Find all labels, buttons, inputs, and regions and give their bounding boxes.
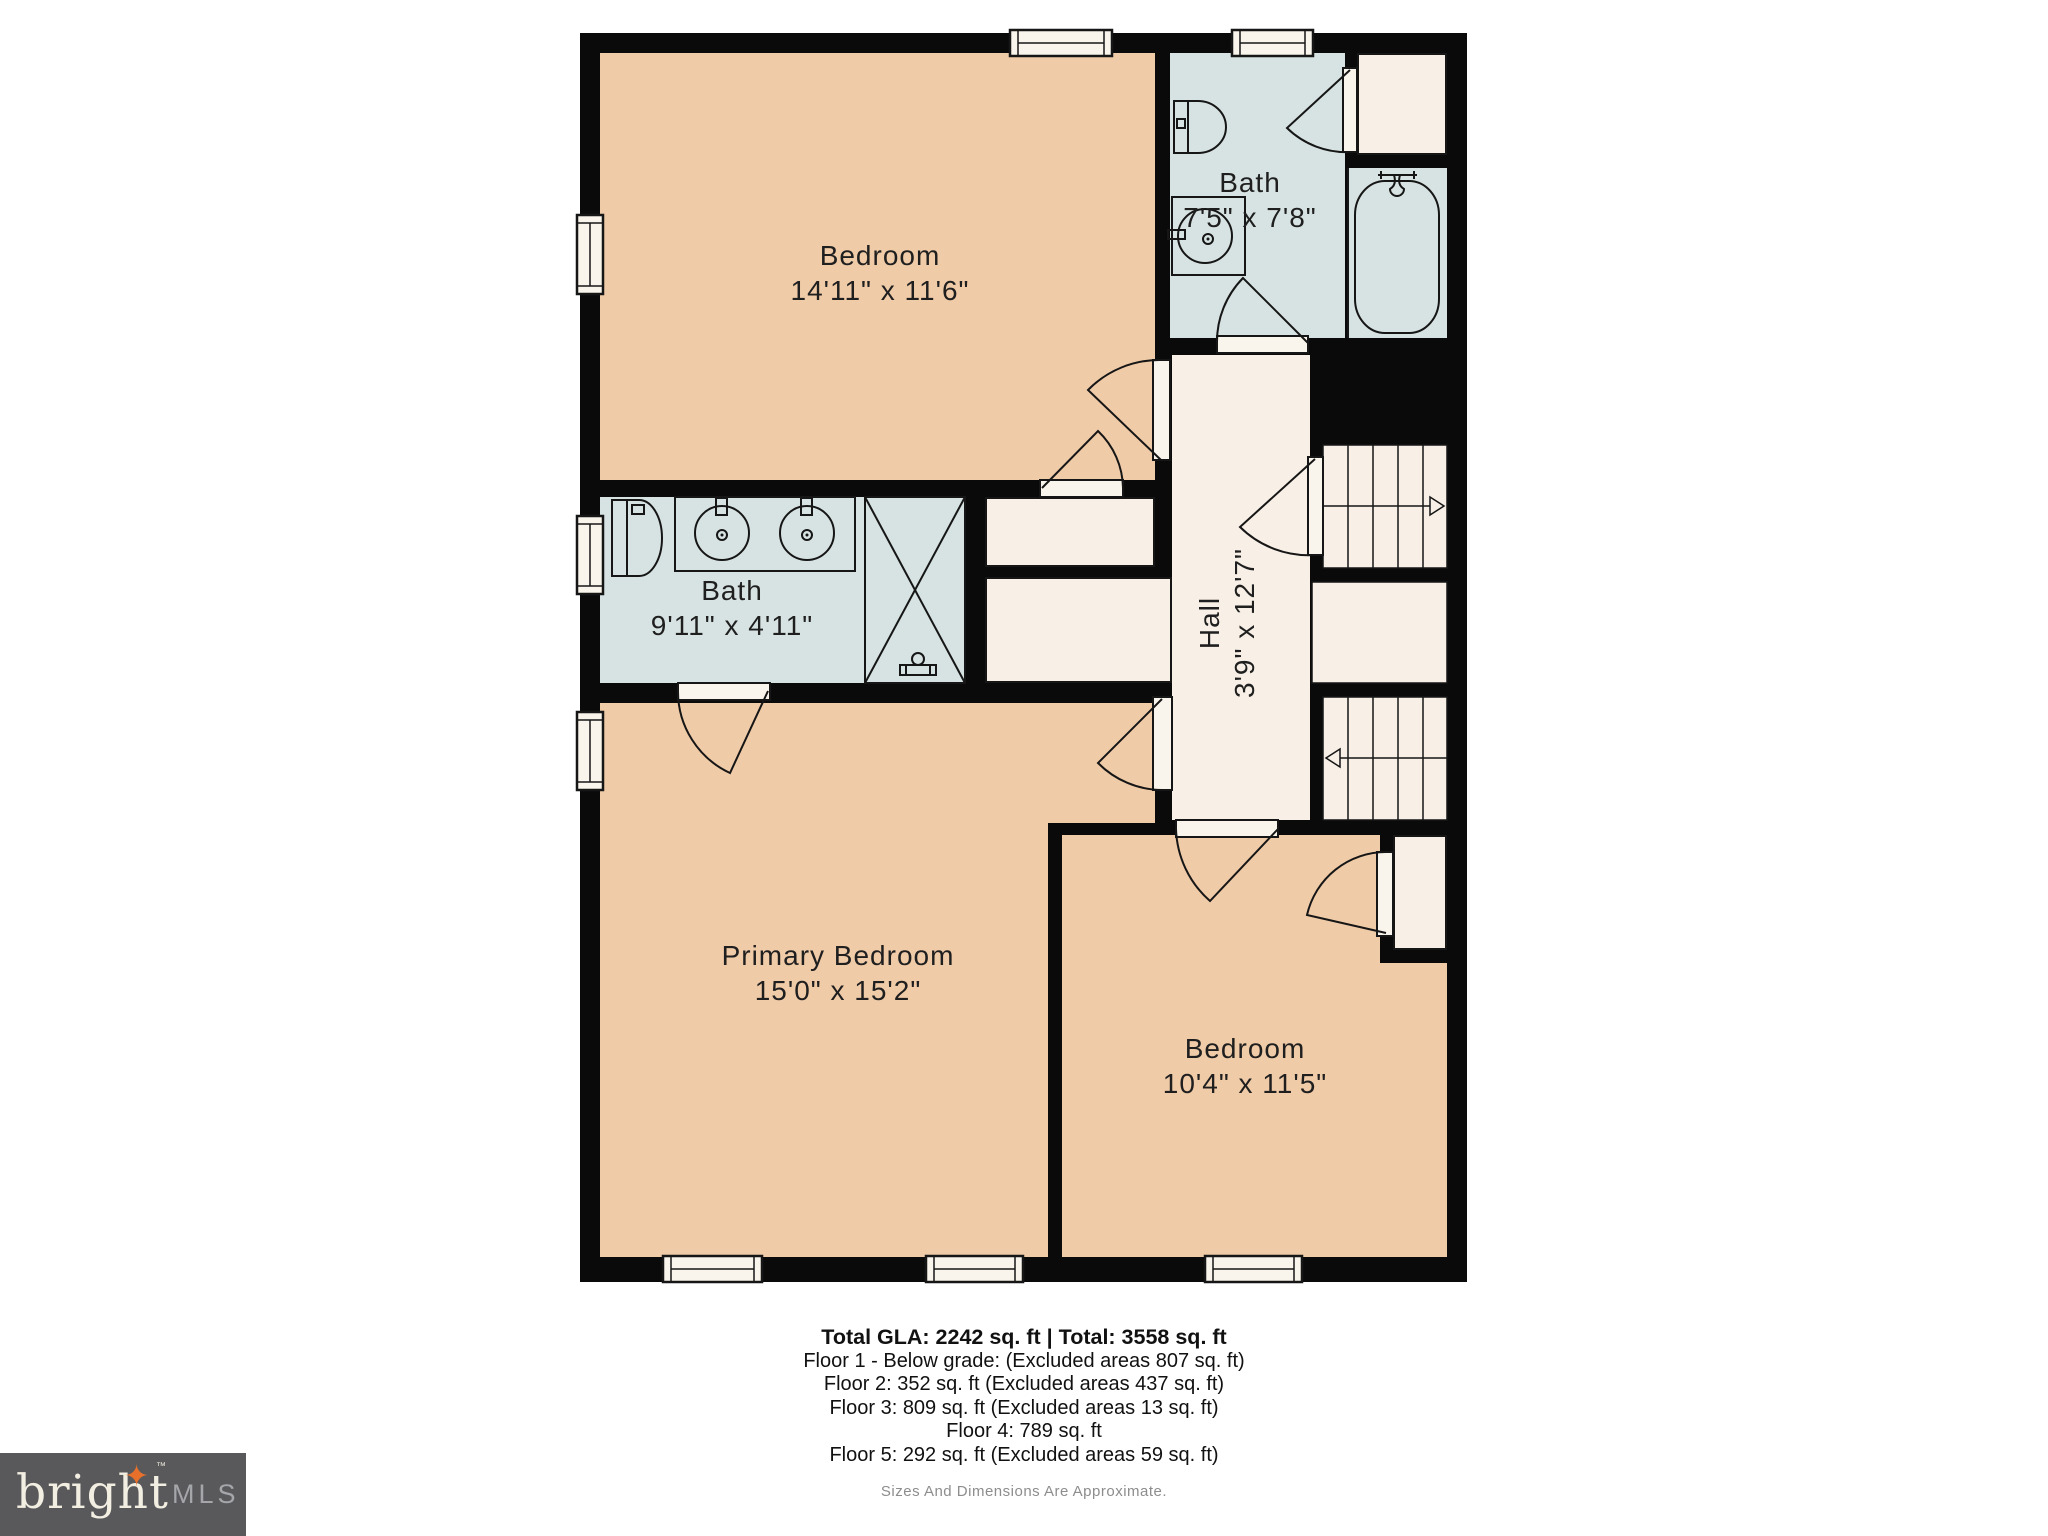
- window-icon: [577, 516, 603, 594]
- stairs-landing: [1312, 582, 1447, 683]
- room-name: Bedroom: [680, 238, 1080, 273]
- room-name: Hall: [1192, 513, 1227, 733]
- label-bath-mid: Bath 9'11" x 4'11": [612, 573, 852, 643]
- room-dims: 14'11" x 11'6": [680, 273, 1080, 308]
- toilet-icon: [612, 500, 662, 576]
- bright-mls-logo: bright ✦ ™ MLS: [0, 1453, 246, 1536]
- room-dims: 9'11" x 4'11": [612, 608, 852, 643]
- room-name: Primary Bedroom: [638, 938, 1038, 973]
- door-bath-mid: [678, 683, 770, 773]
- stairs-up-icon: [1323, 445, 1447, 568]
- door-primary-bedroom: [1098, 697, 1172, 790]
- label-hall: Hall 3'9" x 12'7": [1192, 513, 1262, 733]
- window-icon: [577, 712, 603, 790]
- stairs-down-icon: [1323, 697, 1447, 820]
- door-bath-top: [1217, 278, 1308, 353]
- bathtub-icon: [1355, 171, 1439, 333]
- window-icon: [1205, 1256, 1302, 1282]
- door-closet-bedroom-top: [1040, 431, 1123, 497]
- door-bedroom-bottom: [1176, 820, 1278, 901]
- shower-icon: [865, 497, 965, 683]
- label-bedroom-bottom: Bedroom 10'4" x 11'5": [1045, 1031, 1445, 1101]
- double-sink-icon: [675, 497, 855, 571]
- floor-line: Floor 1 - Below grade: (Excluded areas 8…: [0, 1350, 2048, 1374]
- label-bath-top: Bath 7'5" x 7'8": [1150, 165, 1350, 235]
- trademark-symbol: ™: [156, 1461, 166, 1472]
- toilet-icon: [1174, 101, 1226, 153]
- label-bedroom-top: Bedroom 14'11" x 11'6": [680, 238, 1080, 308]
- sparkle-icon: ✦: [124, 1459, 149, 1494]
- logo-mls-text: MLS: [172, 1479, 240, 1510]
- door-closet-top-right: [1287, 68, 1357, 152]
- label-primary-bedroom: Primary Bedroom 15'0" x 15'2": [638, 938, 1038, 1008]
- room-dims: 3'9" x 12'7": [1227, 513, 1262, 733]
- window-icon: [1232, 30, 1313, 56]
- area-summary: Total GLA: 2242 sq. ft | Total: 3558 sq.…: [0, 1326, 2048, 1504]
- window-icon: [926, 1256, 1023, 1282]
- room-name: Bath: [1150, 165, 1350, 200]
- disclaimer: Sizes And Dimensions Are Approximate.: [0, 1480, 2048, 1504]
- window-icon: [577, 215, 603, 294]
- room-name: Bedroom: [1045, 1031, 1445, 1066]
- floor-line: Floor 5: 292 sq. ft (Excluded areas 59 s…: [0, 1444, 2048, 1468]
- total-gla-line: Total GLA: 2242 sq. ft | Total: 3558 sq.…: [0, 1326, 2048, 1350]
- door-bedroom-top: [1088, 360, 1170, 460]
- room-dims: 10'4" x 11'5": [1045, 1066, 1445, 1101]
- floor-line: Floor 3: 809 sq. ft (Excluded areas 13 s…: [0, 1397, 2048, 1421]
- floor-line: Floor 2: 352 sq. ft (Excluded areas 437 …: [0, 1373, 2048, 1397]
- window-icon: [1010, 30, 1112, 56]
- room-dims: 15'0" x 15'2": [638, 973, 1038, 1008]
- room-name: Bath: [612, 573, 852, 608]
- floor-line: Floor 4: 789 sq. ft: [0, 1420, 2048, 1444]
- door-closet-bedroom-bottom: [1307, 852, 1393, 936]
- room-dims: 7'5" x 7'8": [1150, 200, 1350, 235]
- window-icon: [663, 1256, 762, 1282]
- floor-plan: Bedroom 14'11" x 11'6" Bath 7'5" x 7'8" …: [580, 33, 1467, 1282]
